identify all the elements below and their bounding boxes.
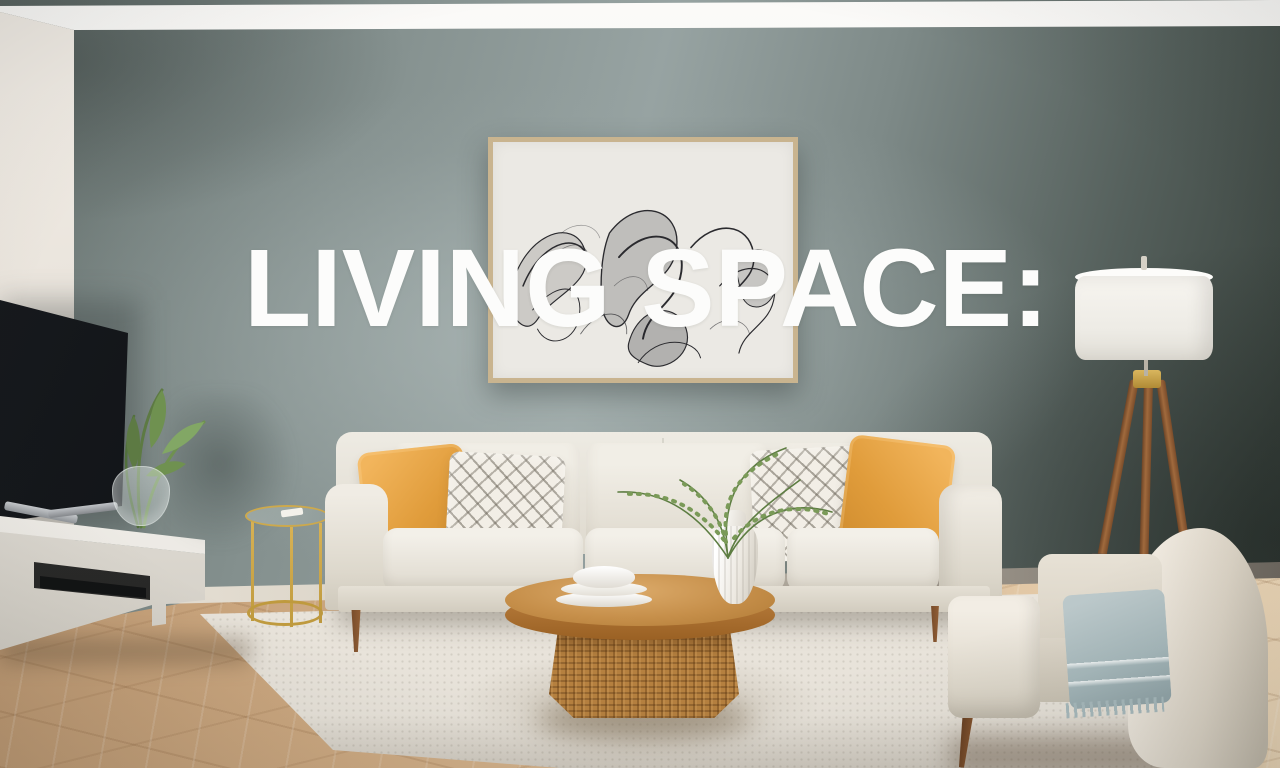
gold-table-base-ring xyxy=(247,600,323,626)
throw-blanket xyxy=(1062,589,1172,710)
white-bowl xyxy=(573,566,635,588)
living-room-photo: LIVING SPACE: xyxy=(0,0,1280,768)
vase-greenery xyxy=(600,430,850,560)
armchair-arm xyxy=(948,596,1040,718)
lamp-finial xyxy=(1141,256,1147,270)
lamp-shade xyxy=(1075,276,1213,360)
console-shadow xyxy=(0,638,250,664)
hero-overlay-title: LIVING SPACE: xyxy=(244,234,1049,344)
